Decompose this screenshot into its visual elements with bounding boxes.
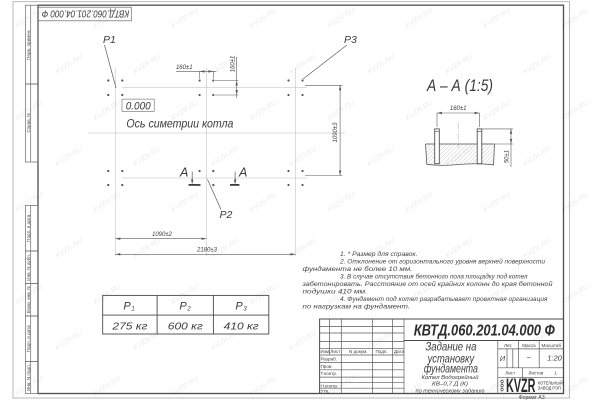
svg-text:2. Отклонение от горизонтально: 2. Отклонение от горизонтального уровня … <box>339 258 545 266</box>
svg-text:Н.контр.: Н.контр. <box>321 383 339 388</box>
svg-text:600 кг: 600 кг <box>168 322 203 333</box>
svg-text:Листов: Листов <box>528 371 543 376</box>
svg-text:Разраб.: Разраб. <box>321 357 338 362</box>
svg-text:Перв. примен.: Перв. примен. <box>26 29 31 60</box>
svg-text:1: 1 <box>131 307 134 313</box>
svg-text:по нагрузкам на фундамент.: по нагрузкам на фундамент. <box>303 303 411 311</box>
svg-text:3. В случае отсутствия бетонно: 3. В случае отсутствия бетонного пола пл… <box>340 273 528 281</box>
svg-text:50±1: 50±1 <box>505 150 511 163</box>
svg-text:1090±2: 1090±2 <box>152 232 173 238</box>
svg-text:160±1: 160±1 <box>450 106 467 112</box>
svg-text:Подп. и дата: Подп. и дата <box>26 214 31 242</box>
svg-text:1:20: 1:20 <box>547 353 562 362</box>
svg-text:Масса: Масса <box>522 343 536 348</box>
svg-text:Задание на: Задание на <box>425 341 476 353</box>
svg-text:0.000: 0.000 <box>126 101 152 113</box>
svg-text:Утв.: Утв. <box>321 389 330 394</box>
svg-text:Подп.: Подп. <box>376 349 388 354</box>
svg-text:KVZR: KVZR <box>506 376 536 397</box>
svg-text:Дата: Дата <box>394 349 405 354</box>
svg-text:КВТД.060.201.04.000 Ф: КВТД.060.201.04.000 Ф <box>42 8 130 20</box>
svg-text:1. * Размер для справок.: 1. * Размер для справок. <box>340 250 418 258</box>
svg-text:Лит.: Лит. <box>504 343 513 348</box>
svg-text:160±1: 160±1 <box>230 56 236 73</box>
svg-text:N докум.: N докум. <box>349 349 368 354</box>
svg-text:1: 1 <box>554 371 557 376</box>
svg-text:Инв. N дубл.: Инв. N дубл. <box>26 254 31 281</box>
svg-text:1090±3: 1090±3 <box>333 122 339 143</box>
svg-text:Котел Водогрейный: Котел Водогрейный <box>422 374 479 381</box>
svg-text:забетонировать. Расстояние от: забетонировать. Расстояние от осей крайн… <box>301 280 552 288</box>
svg-text:Т.контр.: Т.контр. <box>321 371 338 376</box>
svg-text:Формат А3: Формат А3 <box>519 395 545 400</box>
svg-text:Ось симетрии котла: Ось симетрии котла <box>126 117 233 131</box>
svg-text:Изм.Лист: Изм.Лист <box>321 349 342 354</box>
svg-text:КВТД.060.201.04.000 Ф: КВТД.060.201.04.000 Ф <box>414 323 555 340</box>
svg-text:КВ–0,7 Д (К): КВ–0,7 Д (К) <box>432 382 468 388</box>
svg-text:Взам. инв. N: Взам. инв. N <box>26 286 31 313</box>
svg-text:Инв. N подл.: Инв. N подл. <box>26 364 31 391</box>
svg-text:Лист: Лист <box>505 371 516 376</box>
svg-text:2180±3: 2180±3 <box>196 248 218 254</box>
svg-text:160±1: 160±1 <box>176 65 193 71</box>
svg-text:P: P <box>179 301 187 313</box>
svg-text:2: 2 <box>186 307 191 313</box>
svg-text:A: A <box>179 166 188 180</box>
svg-text:фундамента не более 10 мм.: фундамента не более 10 мм. <box>303 265 413 273</box>
svg-text:P1: P1 <box>103 34 116 46</box>
svg-text:А – А (1:5): А – А (1:5) <box>426 77 493 95</box>
svg-text:275 кг: 275 кг <box>111 322 147 333</box>
svg-text:Справ. N: Справ. N <box>26 113 31 132</box>
svg-text:Пров.: Пров. <box>321 364 333 369</box>
svg-text:Подп. и дата: Подп. и дата <box>26 325 31 353</box>
svg-text:P: P <box>123 301 131 313</box>
svg-text:410 кг: 410 кг <box>224 322 259 333</box>
svg-text:по техническому заданию: по техническому заданию <box>416 389 485 395</box>
svg-text:4. Фундамент под котел разраба: 4. Фундамент под котел разрабатывает про… <box>340 295 548 303</box>
svg-text:P3: P3 <box>344 34 357 46</box>
svg-text:И: И <box>500 354 506 363</box>
svg-text:подушки 410 мм.: подушки 410 мм. <box>303 288 368 296</box>
svg-text:Масштаб: Масштаб <box>541 343 561 348</box>
svg-text:A: A <box>238 166 247 180</box>
svg-text:фундамента: фундамента <box>424 363 478 375</box>
svg-text:ООО: ООО <box>500 379 506 391</box>
svg-text:P: P <box>235 301 243 313</box>
svg-text:–: – <box>526 352 532 361</box>
svg-text:ЗАВОД РЭП: ЗАВОД РЭП <box>538 386 561 392</box>
svg-text:P2: P2 <box>220 209 233 221</box>
